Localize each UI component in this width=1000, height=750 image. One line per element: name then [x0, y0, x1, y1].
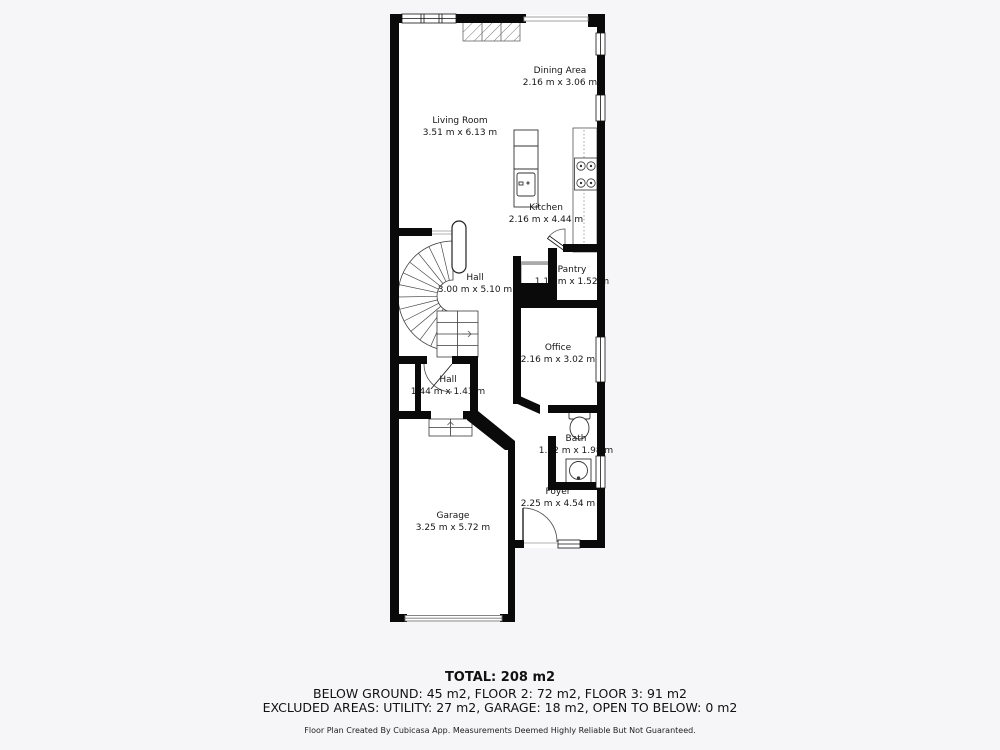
window-top-left [402, 14, 456, 23]
pantry-door [548, 229, 567, 251]
railing-top [524, 17, 588, 21]
room-label-foyer: Foyer 2.25 m x 4.54 m [521, 487, 595, 510]
summary-disclaimer: Floor Plan Created By Cubicasa App. Meas… [0, 726, 1000, 735]
entry-door [523, 508, 557, 542]
window-bath [596, 456, 605, 488]
room-label-office: Office 2.16 m x 3.02 m [521, 343, 595, 366]
staircase-spiral [398, 241, 453, 351]
stair-railing [452, 221, 466, 273]
window-dining [596, 33, 605, 55]
island-sink-icon [517, 173, 535, 196]
kitchen-island [514, 130, 538, 207]
window-foyer [558, 540, 580, 548]
room-label-garage: Garage 3.25 m x 5.72 m [416, 511, 490, 534]
garage-door [405, 616, 502, 622]
staircase-straight [437, 311, 478, 357]
window-dining2 [596, 95, 605, 121]
room-label-kitchen: Kitchen 2.16 m x 4.44 m [509, 203, 583, 226]
room-label-hall2: Hall 1.44 m x 1.43 m [411, 375, 485, 398]
room-label-dining: Dining Area 2.16 m x 3.06 m [523, 66, 597, 89]
summary-total: TOTAL: 208 m2 [0, 670, 1000, 685]
room-label-bath: Bath 1.02 m x 1.98 m [539, 434, 613, 457]
garage-steps [429, 419, 472, 436]
open-to-below-hatch [463, 22, 520, 41]
stove-icon [575, 158, 598, 190]
floorplan-walls-layer [0, 0, 1000, 750]
floorplan-floor-layer [0, 0, 1000, 750]
bath-sink-icon [566, 459, 591, 484]
window-office [596, 337, 605, 382]
kitchen-counter [573, 128, 597, 252]
room-label-hall: Hall 3.00 m x 5.10 m [438, 273, 512, 296]
summary-excluded: EXCLUDED AREAS: UTILITY: 27 m2, GARAGE: … [0, 700, 1000, 715]
floorplan-canvas: Dining Area 2.16 m x 3.06 m Living Room … [0, 0, 1000, 750]
room-label-pantry: Pantry 1.16 m x 1.52 m [535, 265, 609, 288]
room-label-living: Living Room 3.51 m x 6.13 m [423, 116, 497, 139]
summary-floors: BELOW GROUND: 45 m2, FLOOR 2: 72 m2, FLO… [0, 686, 1000, 701]
